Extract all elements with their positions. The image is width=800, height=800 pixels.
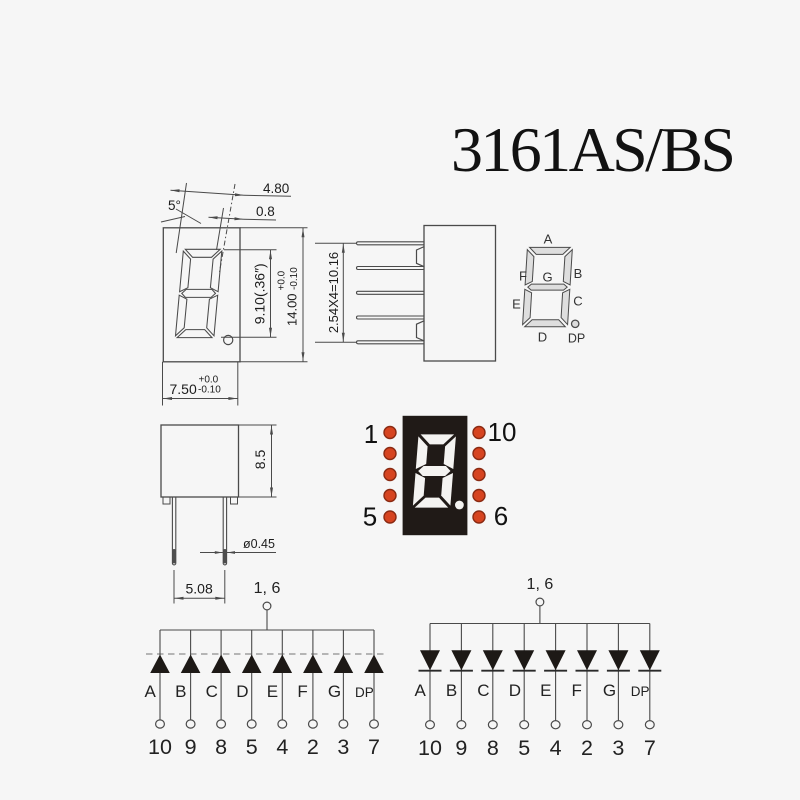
svg-text:C: C bbox=[573, 294, 582, 309]
svg-text:1, 6: 1, 6 bbox=[254, 580, 281, 597]
svg-text:E: E bbox=[267, 682, 278, 701]
svg-text:D: D bbox=[538, 330, 547, 345]
svg-text:D: D bbox=[236, 682, 248, 701]
svg-text:C: C bbox=[206, 682, 218, 701]
svg-text:7: 7 bbox=[644, 736, 656, 760]
svg-text:F: F bbox=[572, 681, 582, 700]
svg-text:9.10(.36″): 9.10(.36″) bbox=[252, 263, 268, 324]
svg-text:ø0.45: ø0.45 bbox=[243, 537, 275, 551]
svg-text:10: 10 bbox=[418, 736, 442, 760]
svg-text:7: 7 bbox=[368, 735, 380, 759]
svg-text:3: 3 bbox=[337, 735, 349, 759]
svg-text:1: 1 bbox=[364, 419, 378, 449]
svg-text:5: 5 bbox=[246, 735, 258, 759]
svg-text:2: 2 bbox=[307, 735, 319, 759]
svg-text:6: 6 bbox=[494, 501, 508, 531]
svg-text:DP: DP bbox=[568, 332, 585, 346]
svg-text:10: 10 bbox=[148, 735, 172, 759]
svg-text:8.5: 8.5 bbox=[252, 450, 268, 470]
svg-text:F: F bbox=[297, 682, 307, 701]
svg-text:B: B bbox=[574, 266, 583, 281]
svg-text:E: E bbox=[512, 297, 521, 312]
svg-text:3161AS/BS: 3161AS/BS bbox=[451, 114, 736, 185]
svg-text:2: 2 bbox=[581, 736, 593, 760]
svg-text:5: 5 bbox=[363, 502, 377, 532]
svg-text:D: D bbox=[509, 681, 521, 700]
svg-text:-0.10: -0.10 bbox=[198, 385, 221, 396]
svg-text:4.80: 4.80 bbox=[263, 181, 289, 196]
svg-text:5.08: 5.08 bbox=[186, 581, 213, 597]
svg-text:9: 9 bbox=[455, 736, 467, 760]
svg-text:DP: DP bbox=[631, 684, 650, 699]
svg-text:A: A bbox=[145, 682, 157, 701]
svg-text:9: 9 bbox=[185, 735, 197, 759]
svg-text:0.8: 0.8 bbox=[256, 204, 275, 219]
svg-text:5: 5 bbox=[518, 736, 530, 760]
svg-text:4: 4 bbox=[276, 735, 288, 759]
svg-text:B: B bbox=[175, 682, 186, 701]
svg-text:8: 8 bbox=[215, 735, 227, 759]
svg-text:A: A bbox=[544, 232, 553, 247]
svg-text:F: F bbox=[519, 269, 527, 284]
svg-text:E: E bbox=[540, 681, 551, 700]
svg-text:G: G bbox=[542, 270, 552, 285]
svg-text:7.50: 7.50 bbox=[170, 381, 197, 397]
svg-text:A: A bbox=[415, 681, 427, 700]
svg-text:G: G bbox=[603, 681, 616, 700]
svg-text:-0.10: -0.10 bbox=[289, 267, 300, 290]
svg-text:C: C bbox=[477, 681, 489, 700]
svg-text:14.00: 14.00 bbox=[285, 293, 300, 326]
svg-text:DP: DP bbox=[355, 685, 374, 700]
svg-text:+0.0: +0.0 bbox=[277, 270, 288, 290]
svg-text:4: 4 bbox=[550, 736, 562, 760]
svg-text:1, 6: 1, 6 bbox=[527, 576, 554, 593]
svg-text:8: 8 bbox=[487, 736, 499, 760]
svg-text:G: G bbox=[328, 682, 341, 701]
svg-text:B: B bbox=[446, 681, 457, 700]
svg-text:3: 3 bbox=[612, 736, 624, 760]
svg-text:10: 10 bbox=[488, 417, 517, 447]
svg-text:2.54X4=10.16: 2.54X4=10.16 bbox=[326, 252, 341, 333]
